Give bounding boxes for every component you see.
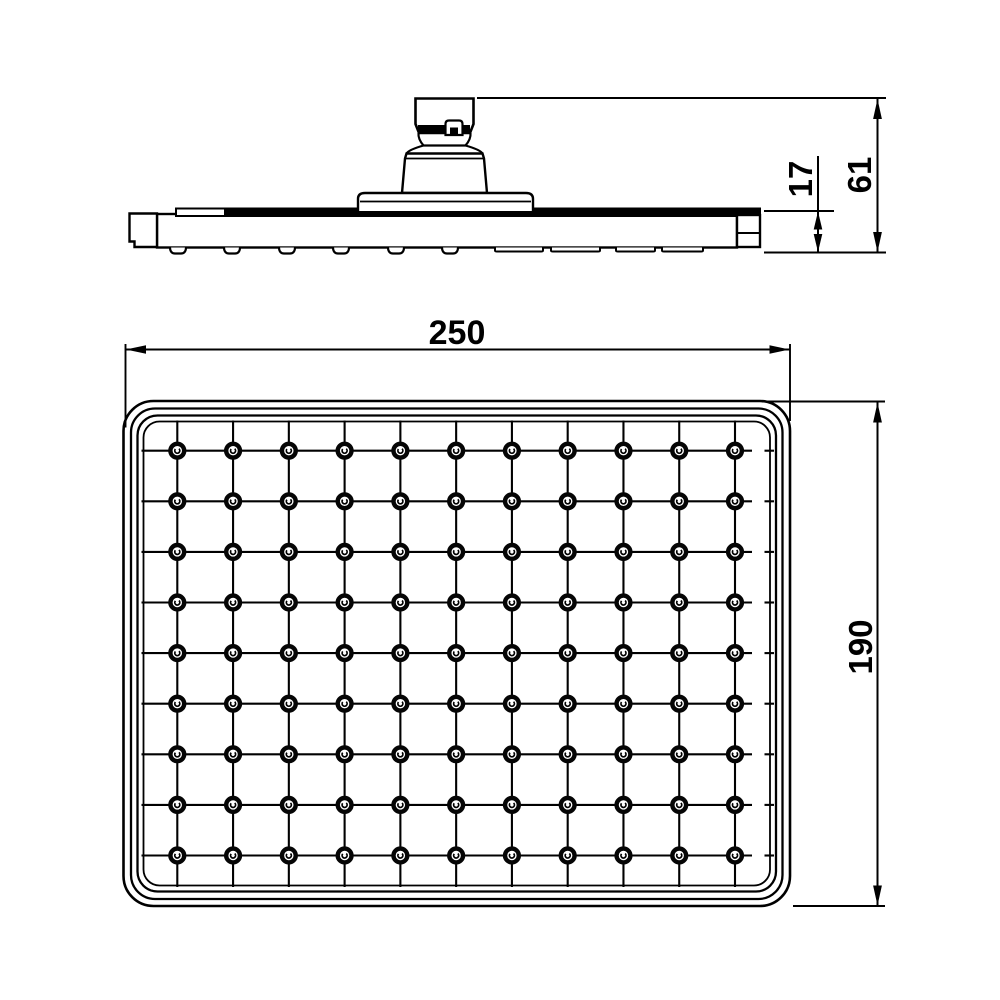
nozzle-ring: [226, 545, 240, 559]
nozzle-ring: [338, 596, 352, 610]
nozzle-ring: [338, 444, 352, 458]
nozzle: [393, 494, 407, 508]
nozzle-ring: [170, 596, 184, 610]
nozzle: [617, 849, 631, 863]
nozzle: [393, 697, 407, 711]
nozzle: [338, 494, 352, 508]
nozzle: [393, 849, 407, 863]
nozzle: [672, 798, 686, 812]
arrow-up-icon: [814, 212, 823, 230]
dim-head-thickness-label: 17: [782, 161, 819, 198]
nozzle-ring: [338, 545, 352, 559]
nozzle-ring: [672, 646, 686, 660]
nozzle-ring: [338, 849, 352, 863]
nozzle: [561, 646, 575, 660]
nozzle-ring: [170, 494, 184, 508]
nozzle: [170, 849, 184, 863]
nozzle: [728, 849, 742, 863]
nozzle-strip: [495, 248, 543, 252]
nozzle-ring: [449, 596, 463, 610]
nozzle-ring: [449, 545, 463, 559]
nozzle: [561, 747, 575, 761]
nozzle: [282, 494, 296, 508]
nozzle: [282, 444, 296, 458]
nozzle-ring: [617, 747, 631, 761]
nozzle: [338, 545, 352, 559]
dim-overall-height-label: 61: [841, 157, 878, 194]
nozzle: [393, 646, 407, 660]
nozzle-ring: [672, 545, 686, 559]
nozzle: [505, 697, 519, 711]
nozzle-ring: [505, 494, 519, 508]
nozzle: [282, 697, 296, 711]
nozzle-ring: [561, 697, 575, 711]
nozzle-ring: [672, 444, 686, 458]
nozzle: [449, 545, 463, 559]
side-left-cap: [130, 214, 158, 248]
nozzle: [561, 444, 575, 458]
nozzle: [561, 494, 575, 508]
nozzle: [505, 545, 519, 559]
nozzle-ring: [170, 444, 184, 458]
nozzle: [561, 798, 575, 812]
nozzle-ring: [449, 747, 463, 761]
nozzle: [226, 798, 240, 812]
nozzle-ring: [393, 596, 407, 610]
nozzle: [728, 444, 742, 458]
nozzle-ring: [561, 646, 575, 660]
nozzle-ring: [617, 494, 631, 508]
nozzle: [282, 747, 296, 761]
nozzle: [393, 596, 407, 610]
nozzle: [505, 596, 519, 610]
nozzle-ring: [170, 849, 184, 863]
nozzle: [449, 747, 463, 761]
nozzle: [505, 646, 519, 660]
nozzle-ring: [170, 646, 184, 660]
nozzle: [393, 747, 407, 761]
nozzle-ring: [505, 849, 519, 863]
nozzle-ring: [282, 646, 296, 660]
nozzle-ring: [505, 697, 519, 711]
nozzle-ring: [393, 646, 407, 660]
nozzle-bump: [224, 248, 240, 254]
nozzle-ring: [728, 849, 742, 863]
nozzle-ring: [617, 646, 631, 660]
nozzle-bump: [170, 248, 186, 254]
nozzle: [728, 494, 742, 508]
nozzle: [672, 697, 686, 711]
nozzle: [617, 646, 631, 660]
nozzle: [226, 849, 240, 863]
nozzle-ring: [449, 646, 463, 660]
dim-width-label: 250: [429, 314, 486, 352]
nozzle-ring: [505, 747, 519, 761]
connector-tab-slot: [450, 128, 458, 136]
arrow-right-icon: [770, 345, 790, 354]
nozzle-ring: [449, 444, 463, 458]
nozzle-ring: [505, 798, 519, 812]
nozzle-ring: [226, 849, 240, 863]
nozzle: [505, 444, 519, 458]
nozzle: [672, 646, 686, 660]
nozzle-ring: [505, 646, 519, 660]
nozzle: [449, 849, 463, 863]
nozzle: [393, 444, 407, 458]
nozzle: [226, 444, 240, 458]
nozzle-ring: [170, 798, 184, 812]
nozzle-ring: [393, 747, 407, 761]
nozzle-ring: [338, 646, 352, 660]
nozzle-bump: [388, 248, 404, 254]
nozzle: [282, 596, 296, 610]
nozzle: [728, 545, 742, 559]
nozzle-ring: [393, 545, 407, 559]
nozzle-ring: [226, 697, 240, 711]
nozzle-ring: [617, 798, 631, 812]
nozzle: [170, 697, 184, 711]
nozzle: [338, 747, 352, 761]
nozzle-ring: [561, 798, 575, 812]
nozzle-ring: [617, 444, 631, 458]
nozzle-ring: [338, 747, 352, 761]
arrow-down-icon: [873, 232, 882, 252]
nozzle: [505, 494, 519, 508]
nozzle-ring: [728, 494, 742, 508]
nozzle-ring: [393, 444, 407, 458]
nozzle-strip: [551, 248, 600, 252]
nozzle: [617, 494, 631, 508]
arrow-up-icon: [873, 403, 882, 423]
nozzle-ring: [505, 545, 519, 559]
nozzle: [617, 798, 631, 812]
nozzle-ring: [282, 545, 296, 559]
nozzle-ring: [282, 697, 296, 711]
nozzle-ring: [672, 494, 686, 508]
nozzle: [226, 646, 240, 660]
nozzle: [338, 798, 352, 812]
nozzle-ring: [170, 545, 184, 559]
dim-head-thickness: 17: [782, 156, 822, 252]
nozzle-ring: [617, 849, 631, 863]
nozzle: [505, 798, 519, 812]
nozzle: [226, 494, 240, 508]
nozzle-ring: [728, 697, 742, 711]
nozzle-ring: [728, 646, 742, 660]
nozzle-ring: [728, 596, 742, 610]
nozzle: [170, 798, 184, 812]
nozzle-ring: [617, 545, 631, 559]
nozzle: [617, 747, 631, 761]
nozzle: [449, 596, 463, 610]
drawing-svg: 61 17 250: [0, 0, 1000, 1000]
nozzle: [449, 798, 463, 812]
nozzle-ring: [282, 494, 296, 508]
side-view: [130, 99, 761, 254]
nozzle: [672, 545, 686, 559]
nozzle-ring: [226, 494, 240, 508]
nozzle: [561, 697, 575, 711]
face-view: [124, 401, 791, 906]
nozzle-ring: [728, 444, 742, 458]
nozzle-ring: [282, 798, 296, 812]
arrow-up-icon: [873, 99, 882, 119]
nozzle: [226, 747, 240, 761]
technical-drawing-canvas: 61 17 250: [0, 0, 1000, 1000]
nozzle: [672, 596, 686, 610]
nozzle: [338, 646, 352, 660]
arrow-left-icon: [126, 345, 146, 354]
nozzle: [672, 849, 686, 863]
nozzle-ring: [449, 697, 463, 711]
nozzle: [170, 747, 184, 761]
nozzle: [282, 646, 296, 660]
nozzle: [728, 646, 742, 660]
nozzle: [170, 545, 184, 559]
nozzle-ring: [449, 798, 463, 812]
nozzle-ring: [561, 747, 575, 761]
dim-overall-height: 61: [841, 99, 882, 252]
nozzle-ring: [226, 444, 240, 458]
nozzle: [282, 545, 296, 559]
nozzle: [226, 545, 240, 559]
nozzle: [170, 596, 184, 610]
nozzle: [728, 747, 742, 761]
nozzle: [170, 646, 184, 660]
nozzle-ring: [561, 494, 575, 508]
nozzle: [449, 697, 463, 711]
nozzle-ring: [282, 747, 296, 761]
nozzle: [617, 545, 631, 559]
nozzle: [393, 545, 407, 559]
nozzle-ring: [393, 494, 407, 508]
nozzle-ring: [393, 798, 407, 812]
nozzle-bump: [333, 248, 349, 254]
nozzle-ring: [393, 849, 407, 863]
nozzle-ring: [226, 646, 240, 660]
nozzle: [617, 697, 631, 711]
nozzle-ring: [672, 596, 686, 610]
nozzle-ring: [226, 596, 240, 610]
nozzle-ring: [728, 747, 742, 761]
connector-mid-block: [402, 154, 487, 194]
nozzle: [338, 444, 352, 458]
nozzle: [449, 494, 463, 508]
nozzle-ring: [672, 747, 686, 761]
nozzle-ring: [505, 596, 519, 610]
nozzle: [226, 596, 240, 610]
nozzle-ring: [170, 697, 184, 711]
nozzle-ring: [282, 849, 296, 863]
nozzle-ring: [282, 596, 296, 610]
nozzle: [449, 646, 463, 660]
nozzle-ring: [561, 849, 575, 863]
nozzle: [505, 747, 519, 761]
nozzle-ring: [338, 697, 352, 711]
nozzle-ring: [617, 596, 631, 610]
nozzle: [561, 849, 575, 863]
nozzle-ring: [672, 798, 686, 812]
nozzle: [561, 545, 575, 559]
arrow-down-icon: [814, 234, 823, 252]
nozzle: [505, 849, 519, 863]
nozzle-ring: [226, 798, 240, 812]
side-head-slab: [157, 214, 737, 248]
nozzle: [338, 697, 352, 711]
nozzle-ring: [561, 596, 575, 610]
nozzle: [728, 697, 742, 711]
nozzle: [226, 697, 240, 711]
nozzle: [561, 596, 575, 610]
nozzle-ring: [449, 849, 463, 863]
nozzle-ring: [672, 849, 686, 863]
nozzle-ring: [505, 444, 519, 458]
nozzle: [282, 798, 296, 812]
nozzle-ring: [561, 545, 575, 559]
nozzle: [672, 494, 686, 508]
nozzle: [170, 444, 184, 458]
nozzle-bump: [442, 248, 458, 254]
arrow-down-icon: [873, 886, 882, 906]
nozzle: [728, 596, 742, 610]
nozzle-ring: [282, 444, 296, 458]
nozzle-ring: [226, 747, 240, 761]
nozzle-ring: [170, 747, 184, 761]
nozzle-ring: [561, 444, 575, 458]
nozzle: [617, 444, 631, 458]
side-right-cap: [737, 215, 760, 247]
nozzle: [617, 596, 631, 610]
nozzle-strip: [616, 248, 655, 252]
nozzle-ring: [338, 494, 352, 508]
nozzle-ring: [728, 798, 742, 812]
nozzle-ring: [338, 798, 352, 812]
nozzle-ring: [672, 697, 686, 711]
nozzle-strip: [662, 248, 703, 252]
nozzle: [170, 494, 184, 508]
dim-height-label: 190: [842, 619, 879, 674]
nozzle: [338, 849, 352, 863]
nozzle-ring: [393, 697, 407, 711]
nozzle-bump: [279, 248, 295, 254]
nozzle: [393, 798, 407, 812]
nozzle: [282, 849, 296, 863]
nozzle: [672, 747, 686, 761]
nozzle: [672, 444, 686, 458]
nozzle: [338, 596, 352, 610]
nozzle: [728, 798, 742, 812]
nozzle-ring: [728, 545, 742, 559]
nozzle: [449, 444, 463, 458]
nozzle-ring: [449, 494, 463, 508]
nozzle-ring: [617, 697, 631, 711]
